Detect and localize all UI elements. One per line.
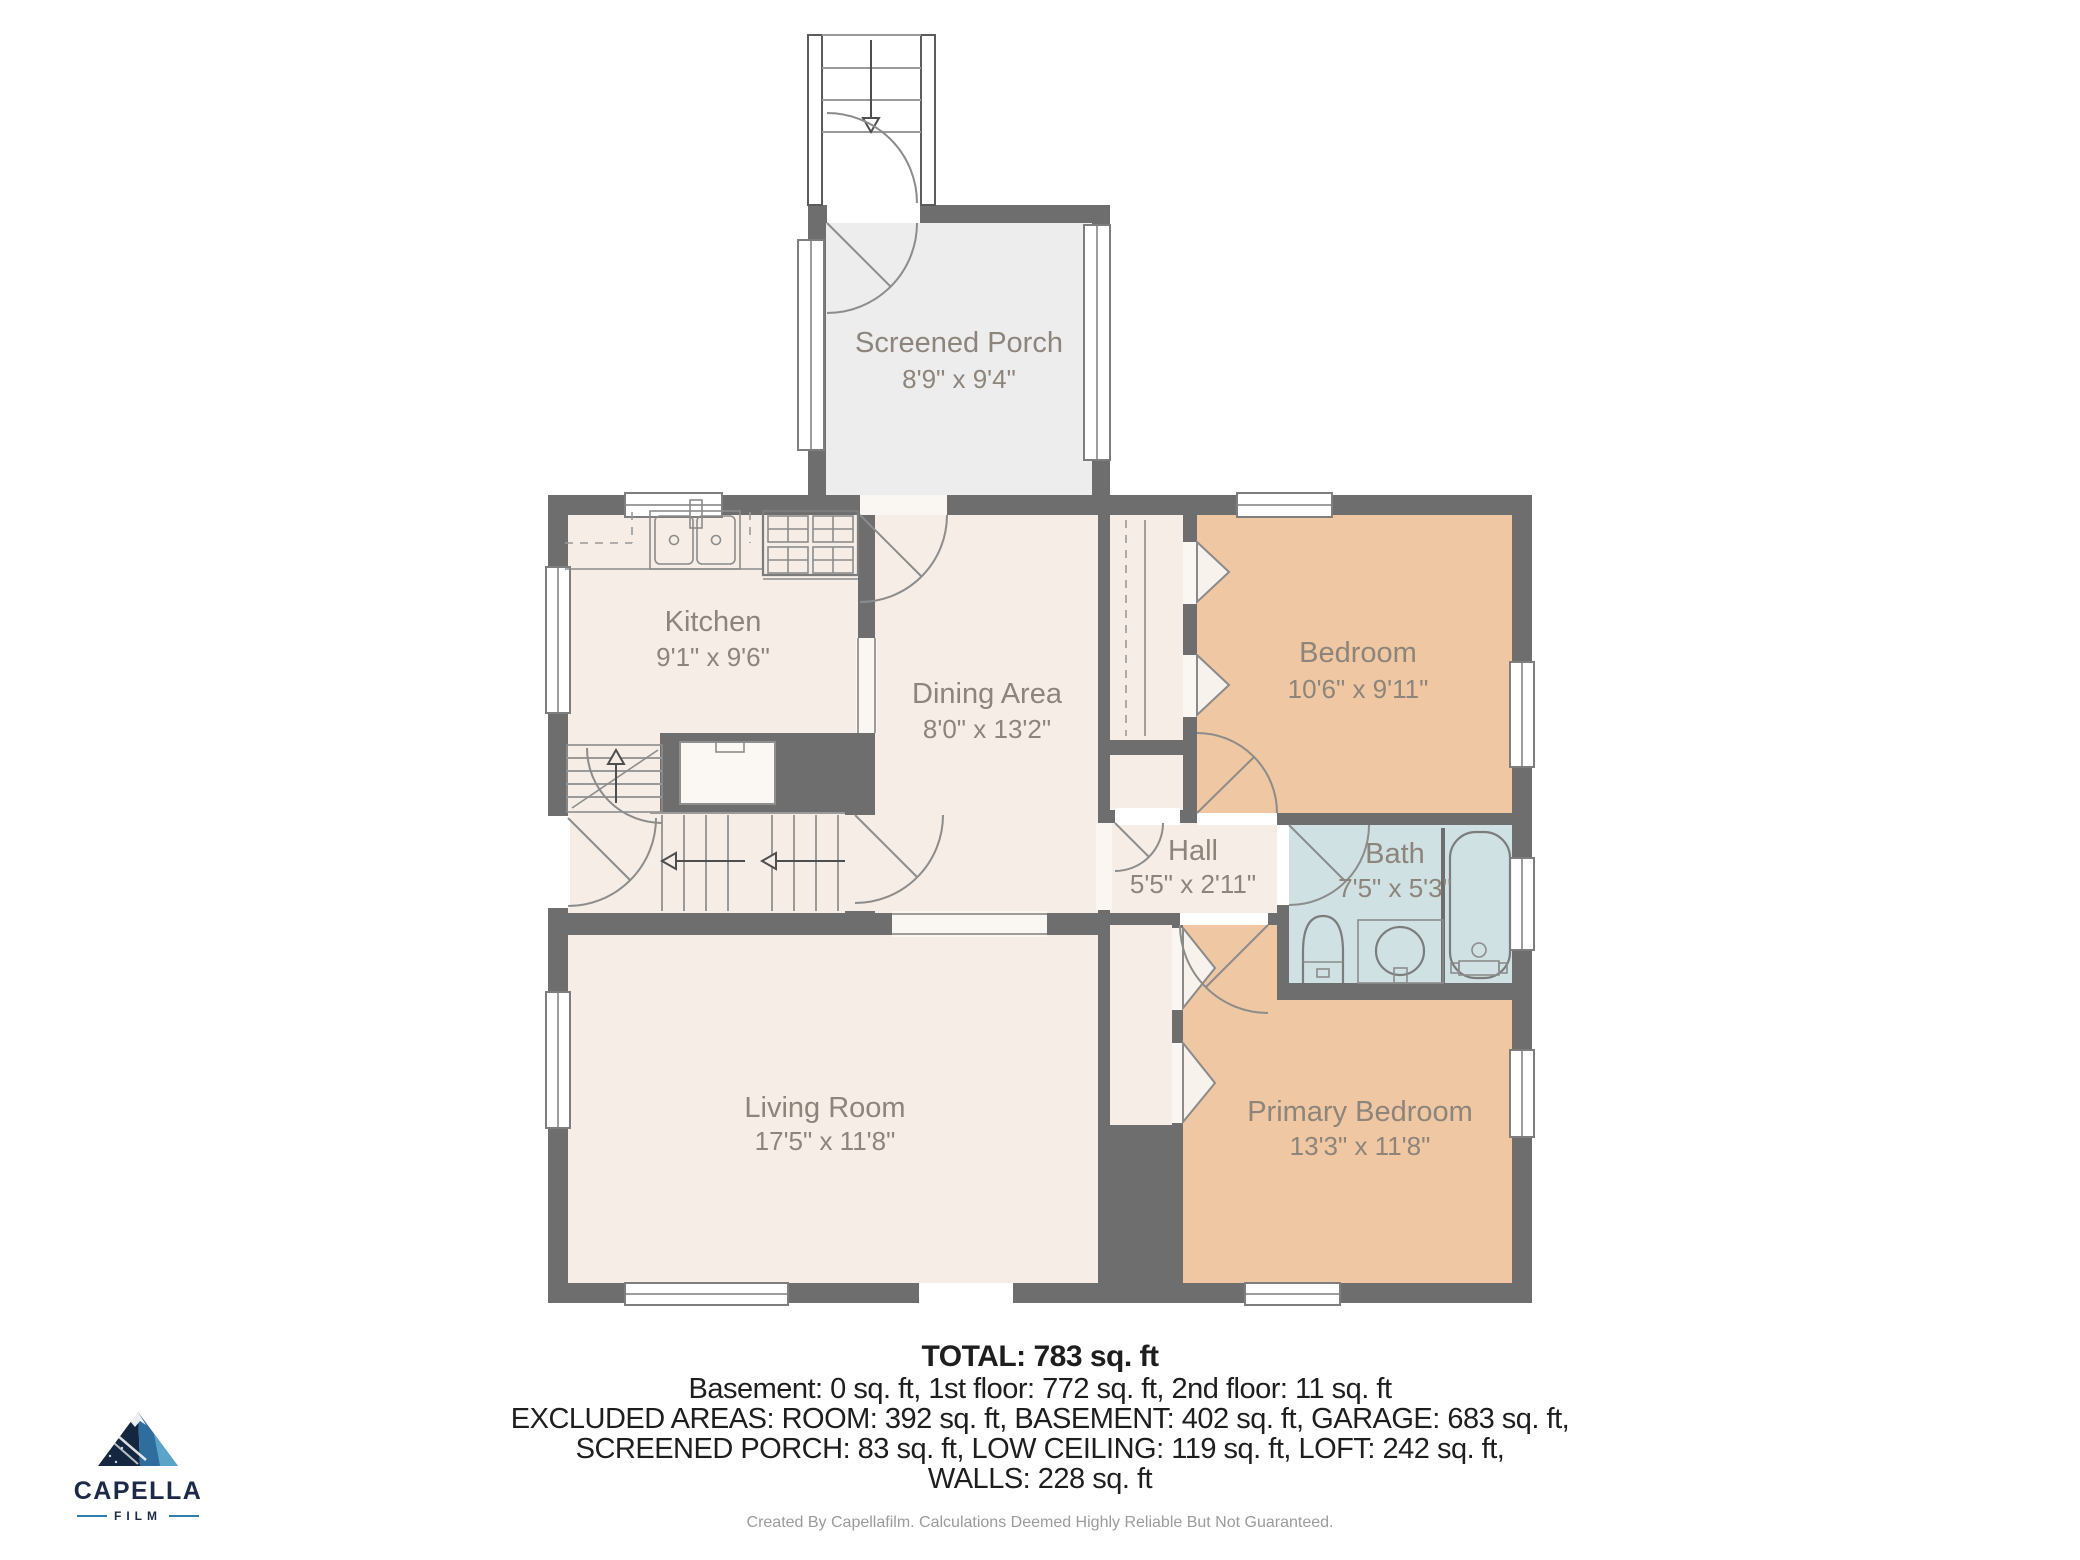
zone-stair-corridor — [660, 813, 845, 913]
disclaimer: Created By Capellafilm. Calculations Dee… — [0, 1514, 2080, 1532]
utility-boxes — [680, 742, 775, 804]
primary-door-opening — [1180, 913, 1268, 925]
floorplan-page: Screened Porch 8'9" x 9'4" Kitchen 9'1" … — [0, 0, 2080, 1560]
window — [1510, 1050, 1534, 1137]
bedroom-door-opening — [1197, 813, 1277, 825]
dims-primary: 13'3" x 11'8" — [1290, 1131, 1431, 1161]
porch-dining-opening — [860, 495, 947, 515]
excluded-areas-3: WALLS: 228 sq. ft — [0, 1464, 2080, 1494]
logo-rule-left — [77, 1515, 107, 1517]
label-bedroom: Bedroom — [1299, 637, 1417, 669]
label-kitchen: Kitchen — [665, 606, 762, 638]
dining-hall-opening — [1096, 823, 1112, 910]
label-dining: Dining Area — [912, 678, 1063, 710]
stairs-exterior — [808, 35, 935, 205]
window — [625, 493, 722, 517]
mountain-logo-icon — [88, 1408, 188, 1470]
porch-entry-opening — [827, 205, 920, 223]
floor-areas: Basement: 0 sq. ft, 1st floor: 772 sq. f… — [0, 1374, 2080, 1404]
dims-screened-porch: 8'9" x 9'4" — [902, 364, 1016, 394]
label-screened-porch: Screened Porch — [855, 327, 1063, 359]
dims-dining: 8'0" x 13'2" — [923, 714, 1051, 744]
window — [798, 240, 824, 450]
primary-bifold-gap-2 — [1172, 1043, 1183, 1123]
bedroom-bifold-gap-2 — [1183, 655, 1197, 717]
window — [1237, 493, 1332, 517]
excluded-areas-1: EXCLUDED AREAS: ROOM: 392 sq. ft, BASEME… — [0, 1404, 2080, 1434]
dims-living: 17'5" x 11'8" — [755, 1126, 896, 1156]
window — [546, 567, 570, 713]
closet-bedroom — [1110, 515, 1183, 740]
dims-hall: 5'5" x 2'11" — [1130, 869, 1256, 899]
logo-rule-right — [169, 1515, 199, 1517]
bath-door-opening — [1277, 825, 1289, 905]
logo-sub-text: FILM — [114, 1509, 162, 1523]
logo-sub-row: FILM — [58, 1509, 218, 1523]
hall-closet-opening — [1115, 808, 1180, 825]
closet-hall — [1110, 755, 1183, 810]
dims-bath: 7'5" x 5'3" — [1338, 873, 1452, 903]
window — [1510, 662, 1534, 767]
window — [1245, 1283, 1340, 1305]
dims-kitchen: 9'1" x 9'6" — [656, 642, 770, 672]
room-screened-porch — [826, 223, 1092, 495]
kitchen-dining-opening — [856, 638, 877, 733]
side-entry-opening — [546, 816, 570, 908]
label-hall: Hall — [1168, 835, 1218, 867]
area-summary: TOTAL: 783 sq. ft Basement: 0 sq. ft, 1s… — [0, 1342, 2080, 1494]
window — [546, 992, 570, 1128]
dims-bedroom: 10'6" x 9'11" — [1288, 674, 1429, 704]
label-primary: Primary Bedroom — [1247, 1096, 1473, 1128]
window — [1510, 858, 1534, 950]
dining-living-opening — [892, 911, 1047, 937]
excluded-areas-2: SCREENED PORCH: 83 sq. ft, LOW CEILING: … — [0, 1434, 2080, 1464]
logo-brand-text: CAPELLA — [58, 1477, 218, 1506]
bedroom-bifold-gap-1 — [1183, 542, 1197, 604]
floor-plan-drawing: Screened Porch 8'9" x 9'4" Kitchen 9'1" … — [0, 0, 2080, 1560]
window — [1084, 225, 1110, 460]
capella-film-logo: CAPELLA FILM — [58, 1408, 218, 1523]
label-bath: Bath — [1365, 838, 1425, 870]
closet-primary — [1110, 925, 1172, 1125]
window — [625, 1283, 788, 1305]
total-area: TOTAL: 783 sq. ft — [0, 1342, 2080, 1372]
label-living: Living Room — [744, 1092, 905, 1124]
bottom-wall-opening — [919, 1283, 1013, 1303]
